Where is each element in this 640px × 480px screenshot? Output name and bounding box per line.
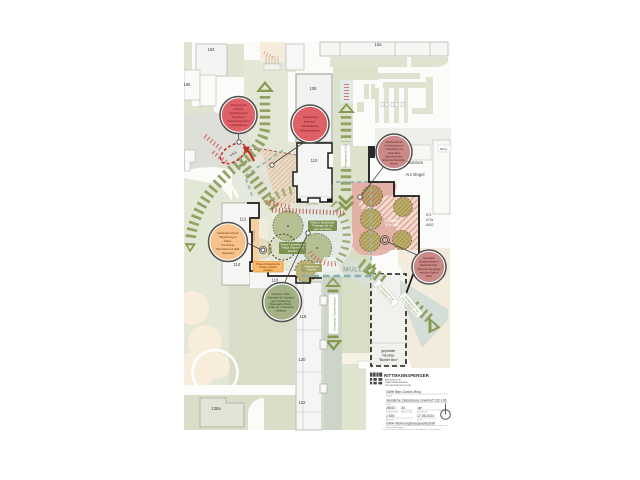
svg-text:MÜLL: MÜLL (343, 265, 363, 274)
svg-text:-ge: -ge (417, 406, 422, 410)
svg-text:108: 108 (310, 86, 318, 91)
svg-text:Natur: Natur (426, 275, 432, 278)
svg-text:Übergang QZ Ost: Übergang QZ Ost (343, 144, 347, 168)
svg-text:Zufahrts-: Zufahrts- (233, 107, 244, 111)
svg-text:erhalten: erhalten (263, 268, 273, 272)
svg-text:"Bunter Ben": "Bunter Ben" (379, 358, 399, 362)
svg-text:& Paketdienste: & Paketdienste (229, 123, 248, 127)
svg-text:Neubau: Neubau (383, 354, 395, 358)
svg-text:Übergang Treppenhäuser: Übergang Treppenhäuser (332, 297, 336, 331)
svg-text:fließende Übergänge: fließende Übergänge (417, 268, 441, 271)
svg-text:naturnahen: naturnahen (388, 152, 401, 155)
svg-text:oben als Wiese: oben als Wiese (314, 227, 332, 231)
svg-text:Raumkante: Raumkante (253, 229, 256, 242)
svg-text:Hochbeete,: Hochbeete, (221, 243, 235, 247)
svg-text:122: 122 (299, 400, 307, 405)
svg-text:138a: 138a (211, 406, 221, 411)
svg-text:Spielelementen,: Spielelementen, (385, 155, 403, 158)
svg-text:1:500: 1:500 (386, 414, 395, 418)
svg-text:bäume: bäume (390, 163, 398, 166)
svg-text:Plankennung: Plankennung (401, 412, 412, 414)
svg-text:/Anlieferung für: /Anlieferung für (229, 111, 247, 115)
svg-text:zwischen Spiel &: zwischen Spiel & (420, 271, 439, 274)
svg-text:Projekt: Projekt (386, 395, 392, 398)
svg-text:Feuerwehr,: Feuerwehr, (232, 115, 246, 119)
svg-text:KiTa-Fläche mit: KiTa-Fläche mit (385, 148, 403, 151)
svg-text:RITTMANNSPERGER: RITTMANNSPERGER (384, 373, 430, 378)
svg-text:17.05.2024: 17.05.2024 (417, 414, 434, 418)
svg-text:geplanter: geplanter (381, 349, 396, 353)
svg-text:Bauherr/Auftraggeber: Bauherr/Auftraggeber (386, 426, 405, 429)
svg-text:Aufwertung: Aufwertung (303, 115, 318, 119)
svg-text:Zentrum: Zentrum (407, 160, 424, 165)
svg-text:186: 186 (184, 82, 192, 87)
svg-text:STADTERNEUERUNG: STADTERNEUERUNG (385, 381, 408, 384)
svg-text:Vegetation: Vegetation (222, 251, 235, 255)
svg-text:Gebäudevorzonen: Gebäudevorzonen (217, 231, 240, 235)
svg-text:KiTa: KiTa (426, 218, 433, 222)
svg-text:184: 184 (208, 47, 216, 52)
svg-text:Spiellandschaft -: Spiellandschaft - (420, 264, 439, 267)
svg-text:ABG: ABG (426, 223, 434, 227)
svg-text:in Verbindung zur: in Verbindung zur (384, 145, 404, 148)
svg-text:Erhalt der Bestands-: Erhalt der Bestands- (383, 159, 406, 162)
svg-text:Sitzkante: Sitzkante (276, 309, 287, 312)
svg-text:28010: 28010 (386, 406, 396, 410)
svg-text:Sitzmöbel und Wild-: Sitzmöbel und Wild- (216, 247, 240, 251)
svg-text:Am Bügel: Am Bügel (405, 172, 424, 177)
svg-text:112: 112 (240, 217, 247, 222)
svg-text:PROJEKTENTWICKLUNG: PROJEKTENTWICKLUNG (385, 385, 412, 387)
svg-text:Krankentransporte: Krankentransporte (227, 119, 250, 123)
svg-text:KiTa ABG: KiTa ABG (385, 223, 399, 227)
svg-text:"Begrünung im: "Begrünung im (219, 235, 237, 239)
svg-text:attraktive Mitte:: attraktive Mitte: (272, 292, 291, 296)
svg-text:Quartier: Quartier (307, 268, 317, 272)
svg-text:GWH Wohnungsbaugesellschaft: GWH Wohnungsbaugesellschaft (386, 421, 435, 425)
svg-text:Raumkante: Raumkante (331, 184, 334, 197)
svg-text:(Rasenpflaster): (Rasenpflaster) (300, 129, 320, 133)
svg-text:34: 34 (401, 406, 405, 410)
svg-text:118: 118 (300, 314, 307, 319)
svg-text:EG:: EG: (426, 213, 432, 217)
svg-text:120: 120 (299, 357, 307, 362)
svg-text:Verlegung der: Verlegung der (230, 103, 247, 107)
svg-text:ARCHITEKTUR: ARCHITEKTUR (385, 379, 401, 382)
svg-text:räumliche Zielsetzung Innenhof: räumliche Zielsetzung Innenhof 132-136 (386, 398, 447, 402)
svg-text:116: 116 (272, 278, 279, 283)
svg-text:Spiellandschaft: Spiellandschaft (386, 141, 403, 144)
svg-text:Alltag":: Alltag": (224, 239, 233, 243)
svg-text:Standort: Standort (288, 249, 298, 253)
svg-text:Bürg.: Bürg. (440, 147, 447, 151)
svg-text:Integration: Integration (423, 257, 435, 260)
svg-text:GWH Ben-Gurion-Ring: GWH Ben-Gurion-Ring (386, 390, 421, 394)
svg-text:Schattentheater in: Schattentheater in (419, 261, 440, 264)
svg-text:10a: 10a (375, 42, 383, 47)
svg-text:Hauswirt-: Hauswirt- (304, 120, 316, 124)
svg-text:schaftsfläche: schaftsfläche (302, 124, 319, 128)
svg-text:114: 114 (234, 262, 241, 267)
svg-text:Raumkante: Raumkante (306, 203, 319, 206)
svg-text:110: 110 (311, 158, 318, 163)
